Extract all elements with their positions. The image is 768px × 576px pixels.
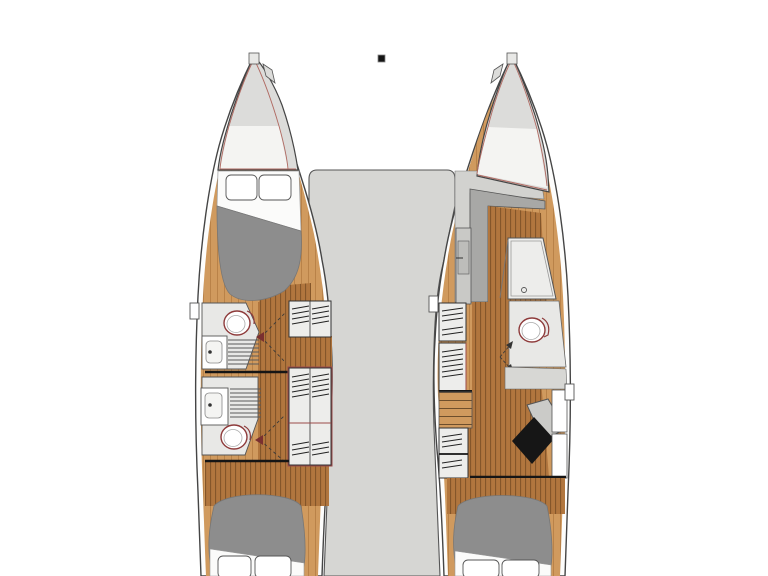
starboard-entry-door-panel bbox=[456, 228, 471, 304]
port-corridor-floor bbox=[258, 302, 289, 470]
starboard-head-vanity bbox=[505, 367, 567, 389]
port-aft-pillow-right bbox=[255, 556, 291, 576]
port-forward-pillow-right bbox=[259, 175, 291, 200]
port-forward-shower-grate bbox=[228, 340, 259, 364]
port-forward-pillow-left bbox=[226, 175, 257, 200]
starboard-aft-pillow-right bbox=[502, 560, 539, 576]
port-aft-sink bbox=[201, 388, 228, 425]
starboard-outboard-locker-bottom bbox=[552, 434, 567, 478]
port-inboard-cabinets bbox=[288, 301, 332, 466]
port-bow-tip bbox=[249, 53, 259, 64]
port-forward-sink bbox=[202, 336, 227, 369]
port-mid-floor bbox=[289, 336, 332, 370]
port-boarding-step bbox=[190, 303, 199, 319]
starboard-aft-pillow-left bbox=[463, 560, 499, 576]
catamaran-deck-plan bbox=[0, 0, 768, 576]
starboard-steps bbox=[439, 392, 472, 428]
catamaran-deck-plan-canvas bbox=[0, 0, 768, 576]
port-anchor-locker bbox=[220, 126, 288, 169]
starboard-bow-tip bbox=[507, 53, 517, 64]
starboard-inboard-step bbox=[429, 296, 438, 312]
port-aft-pillow-left bbox=[218, 556, 251, 576]
mast-base-marker bbox=[378, 55, 385, 62]
starboard-head bbox=[500, 301, 567, 389]
starboard-outboard-step bbox=[565, 384, 574, 400]
